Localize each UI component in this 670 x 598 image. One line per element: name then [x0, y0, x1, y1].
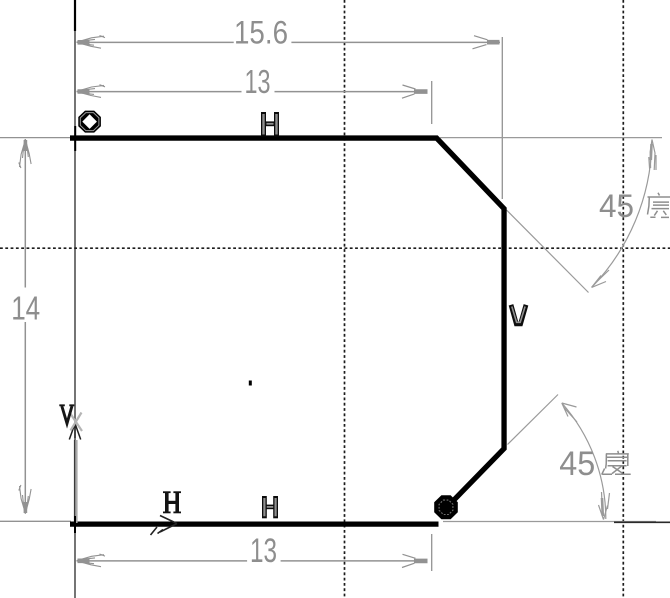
svg-text:14: 14 — [11, 290, 40, 327]
svg-text:45: 45 — [559, 445, 595, 483]
svg-text:13: 13 — [245, 63, 271, 100]
svg-text:15.6: 15.6 — [234, 15, 288, 51]
svg-text:13: 13 — [250, 532, 277, 570]
svg-text:45: 45 — [599, 187, 634, 224]
